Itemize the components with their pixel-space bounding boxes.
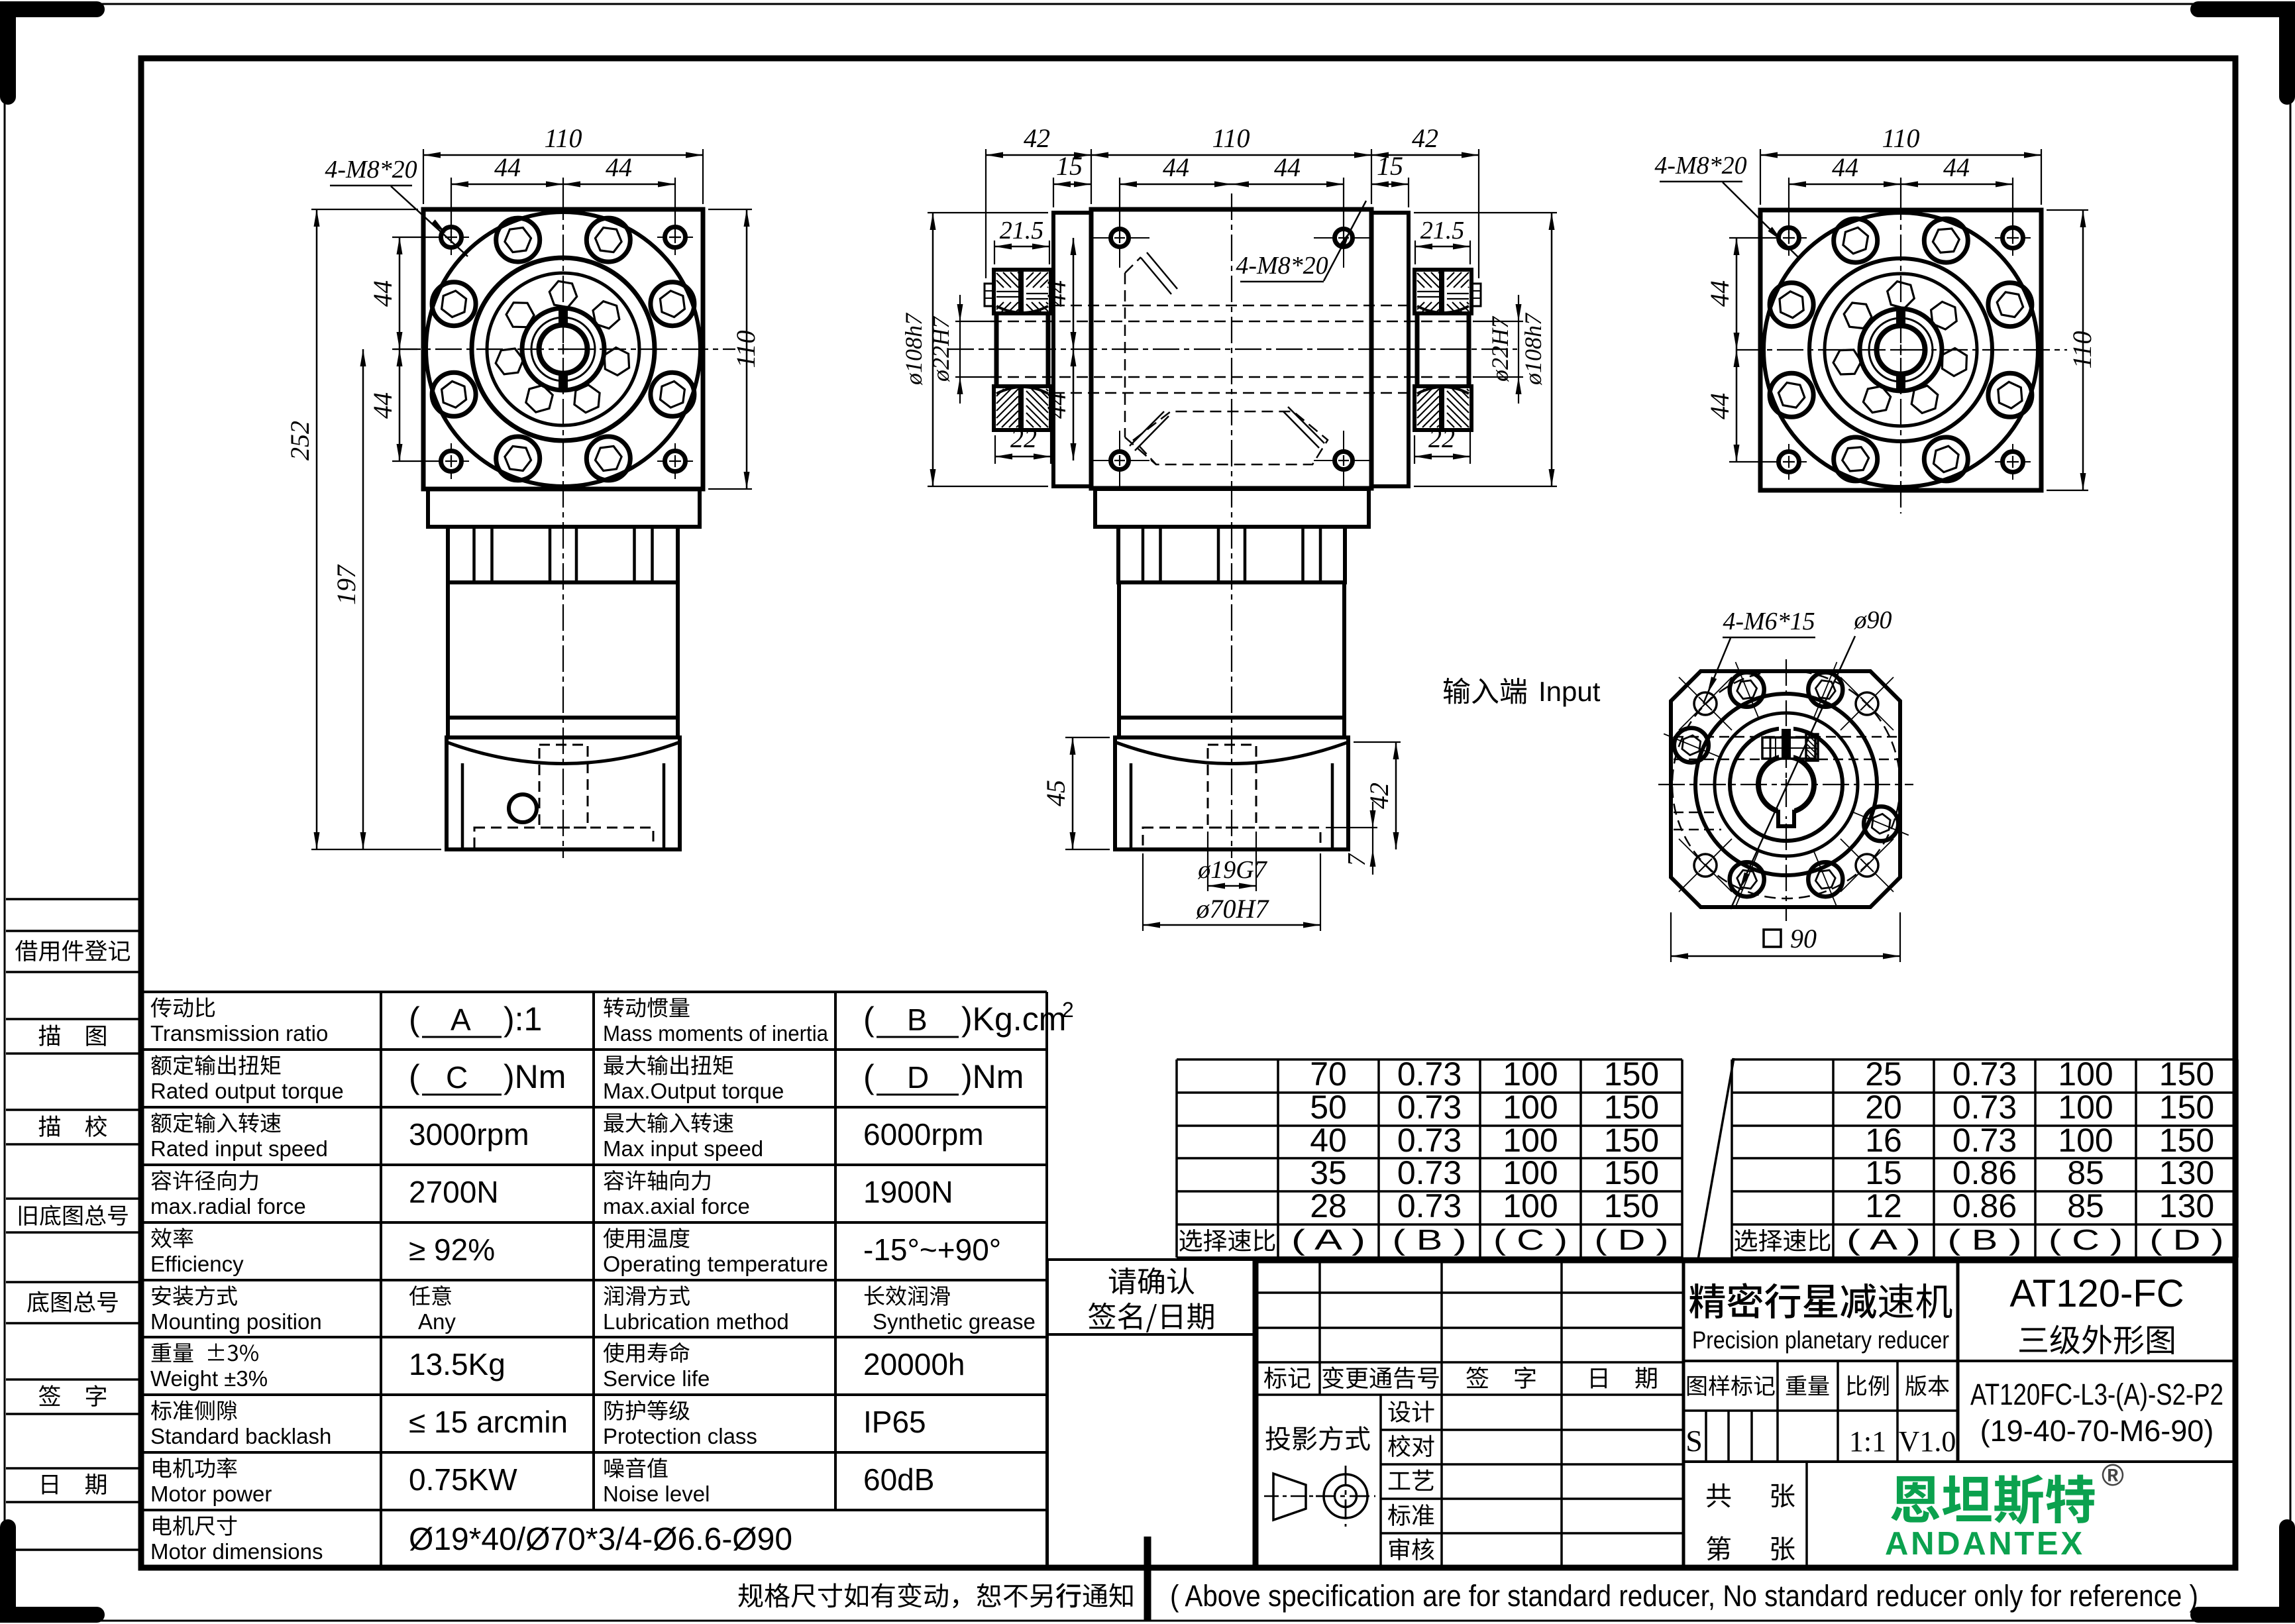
svg-text:150: 150 [1604, 1122, 1659, 1159]
svg-text:110: 110 [731, 330, 761, 368]
svg-text:4-M8*20: 4-M8*20 [1654, 152, 1746, 180]
svg-text:100: 100 [1503, 1187, 1558, 1224]
svg-text:( B ): ( B ) [1948, 1224, 2022, 1256]
svg-text:110: 110 [1212, 123, 1250, 153]
svg-text:13.5Kg: 13.5Kg [409, 1347, 506, 1381]
svg-text:44: 44 [368, 280, 398, 307]
svg-text:70: 70 [1310, 1056, 1347, 1093]
svg-text:ANDANTEX: ANDANTEX [1885, 1526, 2082, 1562]
svg-text:16: 16 [1865, 1122, 1902, 1159]
svg-text:( D ): ( D ) [2150, 1224, 2224, 1256]
svg-text:( A ): ( A ) [1846, 1224, 1921, 1256]
svg-text:Max.Output torque: Max.Output torque [603, 1079, 784, 1103]
svg-text:100: 100 [2058, 1122, 2113, 1159]
svg-text:7: 7 [1343, 853, 1371, 867]
svg-text:( D ): ( D ) [1595, 1224, 1669, 1256]
svg-text:22: 22 [1428, 423, 1455, 453]
svg-text:44: 44 [368, 392, 398, 419]
svg-text:44: 44 [1041, 392, 1071, 419]
svg-text:(: ( [863, 1058, 875, 1095]
svg-text:150: 150 [2159, 1089, 2214, 1126]
svg-text:130: 130 [2159, 1187, 2214, 1224]
svg-text:(: ( [409, 1001, 420, 1038]
svg-text:44: 44 [1041, 280, 1071, 307]
svg-text:ø22H7: ø22H7 [928, 315, 954, 382]
svg-text:B: B [907, 1002, 928, 1037]
svg-text:ø90: ø90 [1854, 606, 1892, 634]
svg-text:Rated input speed: Rated input speed [150, 1136, 328, 1161]
svg-text:100: 100 [1503, 1154, 1558, 1191]
svg-text:Any: Any [418, 1309, 456, 1334]
svg-text:Service life: Service life [603, 1366, 710, 1391]
svg-text:Standard backlash: Standard backlash [150, 1424, 331, 1448]
svg-text:( B ): ( B ) [1393, 1224, 1467, 1256]
svg-text:100: 100 [2058, 1056, 2113, 1093]
svg-text:44: 44 [1705, 393, 1735, 419]
svg-text:100: 100 [1503, 1089, 1558, 1126]
svg-text:0.73: 0.73 [1397, 1089, 1462, 1126]
svg-text:Max input speed: Max input speed [603, 1136, 763, 1161]
svg-text:IP65: IP65 [863, 1405, 926, 1439]
svg-text:60dB: 60dB [863, 1462, 934, 1497]
svg-text:( C ): ( C ) [2049, 1224, 2123, 1256]
svg-text:35: 35 [1310, 1154, 1347, 1191]
svg-text:42: 42 [1364, 783, 1394, 809]
svg-text:)Nm: )Nm [504, 1058, 566, 1095]
svg-text:≥ 92%: ≥ 92% [409, 1232, 495, 1267]
svg-text:C: C [446, 1060, 468, 1095]
svg-text:Motor power: Motor power [150, 1482, 272, 1506]
svg-text:4-M8*20: 4-M8*20 [325, 156, 417, 184]
svg-text:):1: ):1 [504, 1001, 542, 1038]
svg-text:21.5: 21.5 [1000, 217, 1044, 244]
svg-text:S: S [1685, 1424, 1703, 1458]
svg-text:110: 110 [1882, 123, 1919, 153]
svg-text:Rated output torque: Rated output torque [150, 1079, 344, 1103]
svg-text:)Nm: )Nm [961, 1058, 1024, 1095]
svg-text:40: 40 [1310, 1122, 1347, 1159]
svg-text:25: 25 [1865, 1056, 1902, 1093]
svg-text:150: 150 [1604, 1056, 1659, 1093]
svg-text:(: ( [863, 1001, 875, 1038]
svg-text:15: 15 [1865, 1154, 1902, 1191]
svg-text:≤ 15 arcmin: ≤ 15 arcmin [409, 1405, 568, 1439]
svg-text:1900N: 1900N [863, 1175, 953, 1209]
svg-text:150: 150 [2159, 1122, 2214, 1159]
svg-text:45: 45 [1041, 780, 1071, 806]
svg-text:ø19G7: ø19G7 [1197, 856, 1267, 884]
svg-text:Weight ±3%: Weight ±3% [150, 1366, 268, 1391]
svg-text:12: 12 [1865, 1187, 1902, 1224]
svg-text:100: 100 [1503, 1122, 1558, 1159]
svg-text:4-M6*15: 4-M6*15 [1723, 608, 1815, 635]
svg-text:Precision planetary reducer: Precision planetary reducer [1692, 1326, 1949, 1354]
svg-text:Protection class: Protection class [603, 1424, 757, 1448]
svg-text:197: 197 [331, 564, 361, 605]
svg-text:44: 44 [1832, 152, 1858, 182]
svg-text:15: 15 [1056, 151, 1083, 181]
svg-text:max.radial force: max.radial force [150, 1194, 306, 1218]
svg-text:AT120FC-L3-(A)-S2-P2: AT120FC-L3-(A)-S2-P2 [1970, 1378, 2223, 1411]
svg-text:(19-40-70-M6-90): (19-40-70-M6-90) [1980, 1414, 2214, 1448]
svg-text:Motor dimensions: Motor dimensions [150, 1539, 323, 1564]
svg-text:130: 130 [2159, 1154, 2214, 1191]
svg-text:Efficiency: Efficiency [150, 1252, 244, 1276]
svg-text:0.73: 0.73 [1952, 1056, 2017, 1093]
svg-text:AT120-FC: AT120-FC [2009, 1272, 2184, 1315]
svg-text:110: 110 [544, 123, 582, 153]
svg-text:( Above specification are for: ( Above specification are for standard r… [1170, 1579, 2198, 1613]
svg-text:Mounting position: Mounting position [150, 1309, 322, 1334]
svg-text:®: ® [2102, 1458, 2124, 1492]
svg-text:44: 44 [494, 152, 521, 182]
svg-text:(: ( [409, 1058, 420, 1095]
svg-text:Transmission ratio: Transmission ratio [150, 1021, 328, 1046]
svg-text:( C ): ( C ) [1493, 1224, 1568, 1256]
svg-text:Noise level: Noise level [603, 1482, 710, 1506]
svg-text:Synthetic grease: Synthetic grease [873, 1309, 1036, 1334]
svg-text:50: 50 [1310, 1089, 1347, 1126]
svg-text:44: 44 [1943, 152, 1970, 182]
svg-text:0.73: 0.73 [1952, 1089, 2017, 1126]
svg-text:Mass moments of inertia: Mass moments of inertia [603, 1021, 829, 1046]
svg-text:)Kg.cm: )Kg.cm [961, 1001, 1066, 1038]
svg-text:110: 110 [2067, 331, 2097, 368]
svg-text:150: 150 [1604, 1187, 1659, 1224]
svg-text:V1.0: V1.0 [1899, 1425, 1956, 1458]
svg-text:A: A [451, 1002, 471, 1037]
svg-text:3000rpm: 3000rpm [409, 1117, 529, 1152]
svg-text:Lubrication method: Lubrication method [603, 1309, 789, 1334]
svg-text:90: 90 [1790, 924, 1817, 953]
svg-text:max.axial force: max.axial force [603, 1194, 750, 1218]
svg-text:Ø19*40/Ø70*3/4-Ø6.6-Ø90: Ø19*40/Ø70*3/4-Ø6.6-Ø90 [409, 1522, 792, 1557]
svg-text:0.73: 0.73 [1397, 1122, 1462, 1159]
svg-text:1:1: 1:1 [1849, 1425, 1886, 1458]
svg-text:0.73: 0.73 [1397, 1187, 1462, 1224]
svg-text:( A ): ( A ) [1291, 1224, 1365, 1256]
svg-text:Input: Input [1538, 676, 1601, 707]
svg-text:0.73: 0.73 [1397, 1056, 1462, 1093]
svg-text:20000h: 20000h [863, 1347, 965, 1381]
svg-text:20: 20 [1865, 1089, 1902, 1126]
svg-text:42: 42 [1412, 123, 1438, 153]
svg-text:150: 150 [1604, 1154, 1659, 1191]
svg-text:0.86: 0.86 [1952, 1154, 2017, 1191]
svg-text:21.5: 21.5 [1420, 217, 1465, 244]
svg-text:D: D [907, 1060, 929, 1095]
svg-text:44: 44 [1705, 280, 1735, 307]
svg-text:ø108h7: ø108h7 [900, 312, 927, 386]
svg-text:6000rpm: 6000rpm [863, 1117, 984, 1152]
svg-text:4-M8*20: 4-M8*20 [1236, 252, 1328, 280]
svg-text:85: 85 [2067, 1187, 2104, 1224]
svg-text:150: 150 [1604, 1089, 1659, 1126]
svg-text:100: 100 [2058, 1089, 2113, 1126]
svg-text:85: 85 [2067, 1154, 2104, 1191]
svg-text:28: 28 [1310, 1187, 1347, 1224]
svg-text:252: 252 [285, 421, 315, 460]
svg-text:44: 44 [1163, 152, 1189, 182]
svg-text:42: 42 [1024, 123, 1050, 153]
svg-text:150: 150 [2159, 1056, 2214, 1093]
svg-text:0.73: 0.73 [1952, 1122, 2017, 1159]
svg-text:0.75KW: 0.75KW [409, 1462, 517, 1497]
svg-text:ø22H7: ø22H7 [1487, 315, 1513, 382]
svg-text:ø70H7: ø70H7 [1196, 894, 1270, 924]
svg-text:ø108h7: ø108h7 [1520, 312, 1546, 386]
svg-text:0.73: 0.73 [1397, 1154, 1462, 1191]
svg-text:0.86: 0.86 [1952, 1187, 2017, 1224]
svg-text:-15°~+90°: -15°~+90° [863, 1232, 1001, 1267]
svg-text:44: 44 [1274, 152, 1301, 182]
svg-text:44: 44 [606, 152, 632, 182]
svg-text:2700N: 2700N [409, 1175, 499, 1209]
svg-text:22: 22 [1010, 423, 1037, 453]
svg-text:Operating temperature: Operating temperature [603, 1252, 828, 1276]
svg-text:2: 2 [1062, 998, 1074, 1022]
svg-text:100: 100 [1503, 1056, 1558, 1093]
